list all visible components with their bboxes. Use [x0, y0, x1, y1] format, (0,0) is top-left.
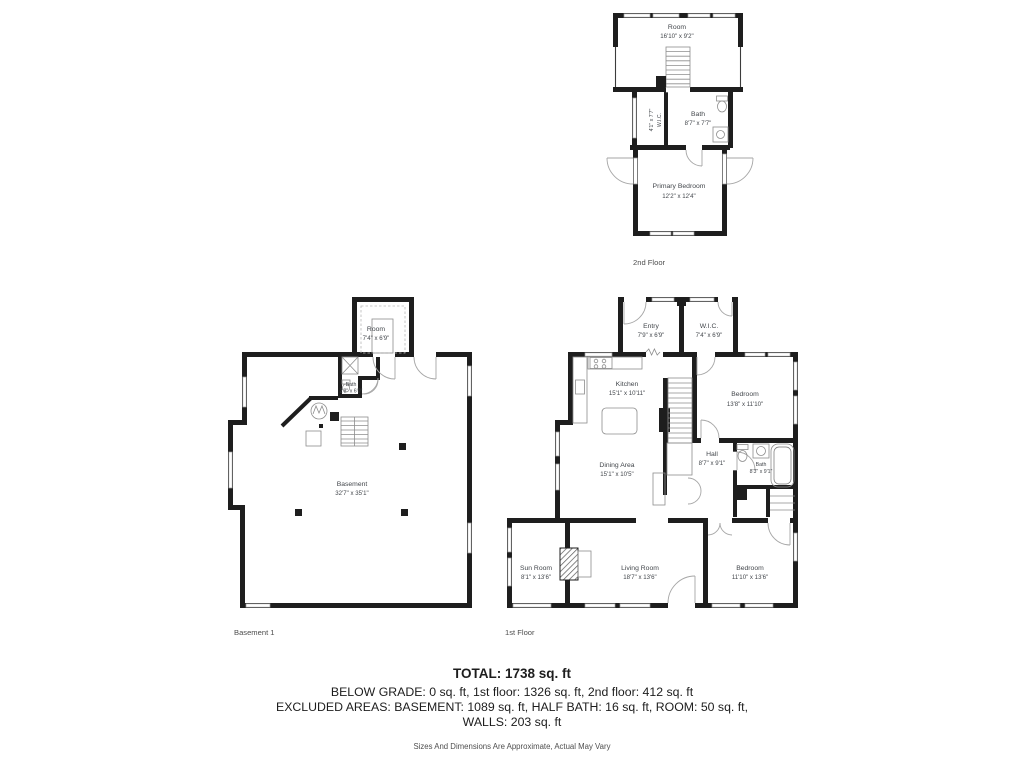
floor-label-second-floor: 2nd Floor	[633, 258, 666, 267]
sink-icon	[753, 444, 769, 458]
room-label-sun-room: Sun Room	[520, 565, 552, 572]
room-dims-attic-room: 16'10" x 9'2"	[660, 33, 693, 40]
room-dims-kitchen: 15'1" x 10'11"	[609, 390, 645, 397]
room-label-living-room: Living Room	[621, 565, 659, 572]
room-dims-dining-area: 15'1" x 10'5"	[600, 471, 633, 478]
basement-plan: Room 7'4" x 6'9" Bath 2'8" x 6'0" Baseme…	[228, 297, 472, 637]
total-area-text: TOTAL: 1738 sq. ft	[0, 666, 1024, 681]
sink-icon	[713, 127, 728, 142]
room-label-basement: Basement	[337, 481, 368, 488]
excluded-walls-text: WALLS: 203 sq. ft	[0, 715, 1024, 730]
room-label-attic-room: Room	[668, 24, 686, 31]
room-dims-living-room: 18'7" x 13'6"	[623, 574, 656, 581]
room-label-basement-bath: Bath	[346, 382, 357, 388]
floor-label-basement: Basement 1	[234, 628, 275, 637]
room-dims-basement-room: 7'4" x 6'9"	[363, 335, 390, 342]
room-dims-bedroom-se: 11'10" x 13'6"	[732, 574, 768, 581]
room-label-wic-2f: W.I.C.	[657, 113, 663, 127]
walls	[507, 297, 798, 609]
room-dims-bath-1f: 8'3" x 9'1"	[750, 469, 773, 475]
room-label-kitchen: Kitchen	[616, 381, 639, 388]
staircase-icon	[341, 417, 368, 446]
support-posts	[295, 412, 408, 516]
room-label-bath-2f: Bath	[691, 111, 705, 118]
stove-icon	[590, 358, 612, 369]
shower-icon	[342, 357, 358, 374]
first-floor-plan: Entry 7'9" x 6'9" W.I.C. 7'4" x 6'9" Kit…	[505, 297, 798, 637]
walls	[228, 297, 472, 608]
room-dims-wic-1f: 7'4" x 6'9"	[696, 332, 723, 339]
room-dims-primary-bedroom: 12'2" x 12'4"	[662, 193, 695, 200]
room-dims-sun-room: 8'1" x 13'6"	[521, 574, 551, 581]
floor-label-first-floor: 1st Floor	[505, 628, 535, 637]
room-dims-bedroom-ne: 13'8" x 11'10"	[727, 401, 763, 408]
fireplace-icon	[560, 548, 591, 580]
room-label-basement-room: Room	[367, 326, 385, 333]
room-label-wic-1f: W.I.C.	[700, 323, 719, 330]
toilet-icon	[717, 96, 728, 112]
water-heater-icon	[306, 431, 321, 446]
understair-closet	[667, 443, 692, 475]
room-label-bedroom-se: Bedroom	[736, 565, 764, 572]
room-dims-hall: 8'7" x 9'1"	[699, 460, 726, 467]
room-dims-entry: 7'9" x 6'9"	[638, 332, 665, 339]
room-dims-basement: 32'7" x 35'1"	[335, 490, 368, 497]
room-label-bedroom-ne: Bedroom	[731, 391, 759, 398]
room-label-hall: Hall	[706, 451, 718, 458]
second-floor-plan: Room 16'10" x 9'2" W.I.C. 4'1" x 7'7" Ba…	[607, 13, 753, 267]
room-label-entry: Entry	[643, 323, 659, 330]
doors	[362, 357, 436, 394]
staircase-icon	[656, 47, 690, 87]
bathtub-icon	[771, 444, 794, 487]
room-dims-bath-2f: 8'7" x 7'7"	[685, 120, 712, 127]
disclaimer-text: Sizes And Dimensions Are Approximate, Ac…	[0, 742, 1024, 751]
kitchen-island	[602, 408, 637, 434]
room-label-bath-1f: Bath	[756, 462, 767, 468]
closet-shelves	[770, 496, 795, 510]
area-by-floor-text: BELOW GRADE: 0 sq. ft, 1st floor: 1326 s…	[0, 685, 1024, 700]
doors	[607, 150, 753, 184]
floor-plans-canvas: Room 16'10" x 9'2" W.I.C. 4'1" x 7'7" Ba…	[0, 0, 1024, 768]
floor-plan-page: Room 16'10" x 9'2" W.I.C. 4'1" x 7'7" Ba…	[0, 0, 1024, 768]
room-dims-basement-bath: 2'8" x 6'0"	[340, 389, 363, 395]
room-label-primary-bedroom: Primary Bedroom	[653, 183, 706, 190]
furnace-icon	[311, 403, 327, 419]
windows	[508, 298, 797, 607]
staircase-icon	[668, 378, 692, 443]
area-summary: TOTAL: 1738 sq. ft BELOW GRADE: 0 sq. ft…	[0, 666, 1024, 751]
excluded-areas-text: EXCLUDED AREAS: BASEMENT: 1089 sq. ft, H…	[0, 700, 1024, 715]
room-label-dining-area: Dining Area	[599, 462, 634, 469]
room-dims-wic-2f: 4'1" x 7'7"	[649, 109, 655, 132]
